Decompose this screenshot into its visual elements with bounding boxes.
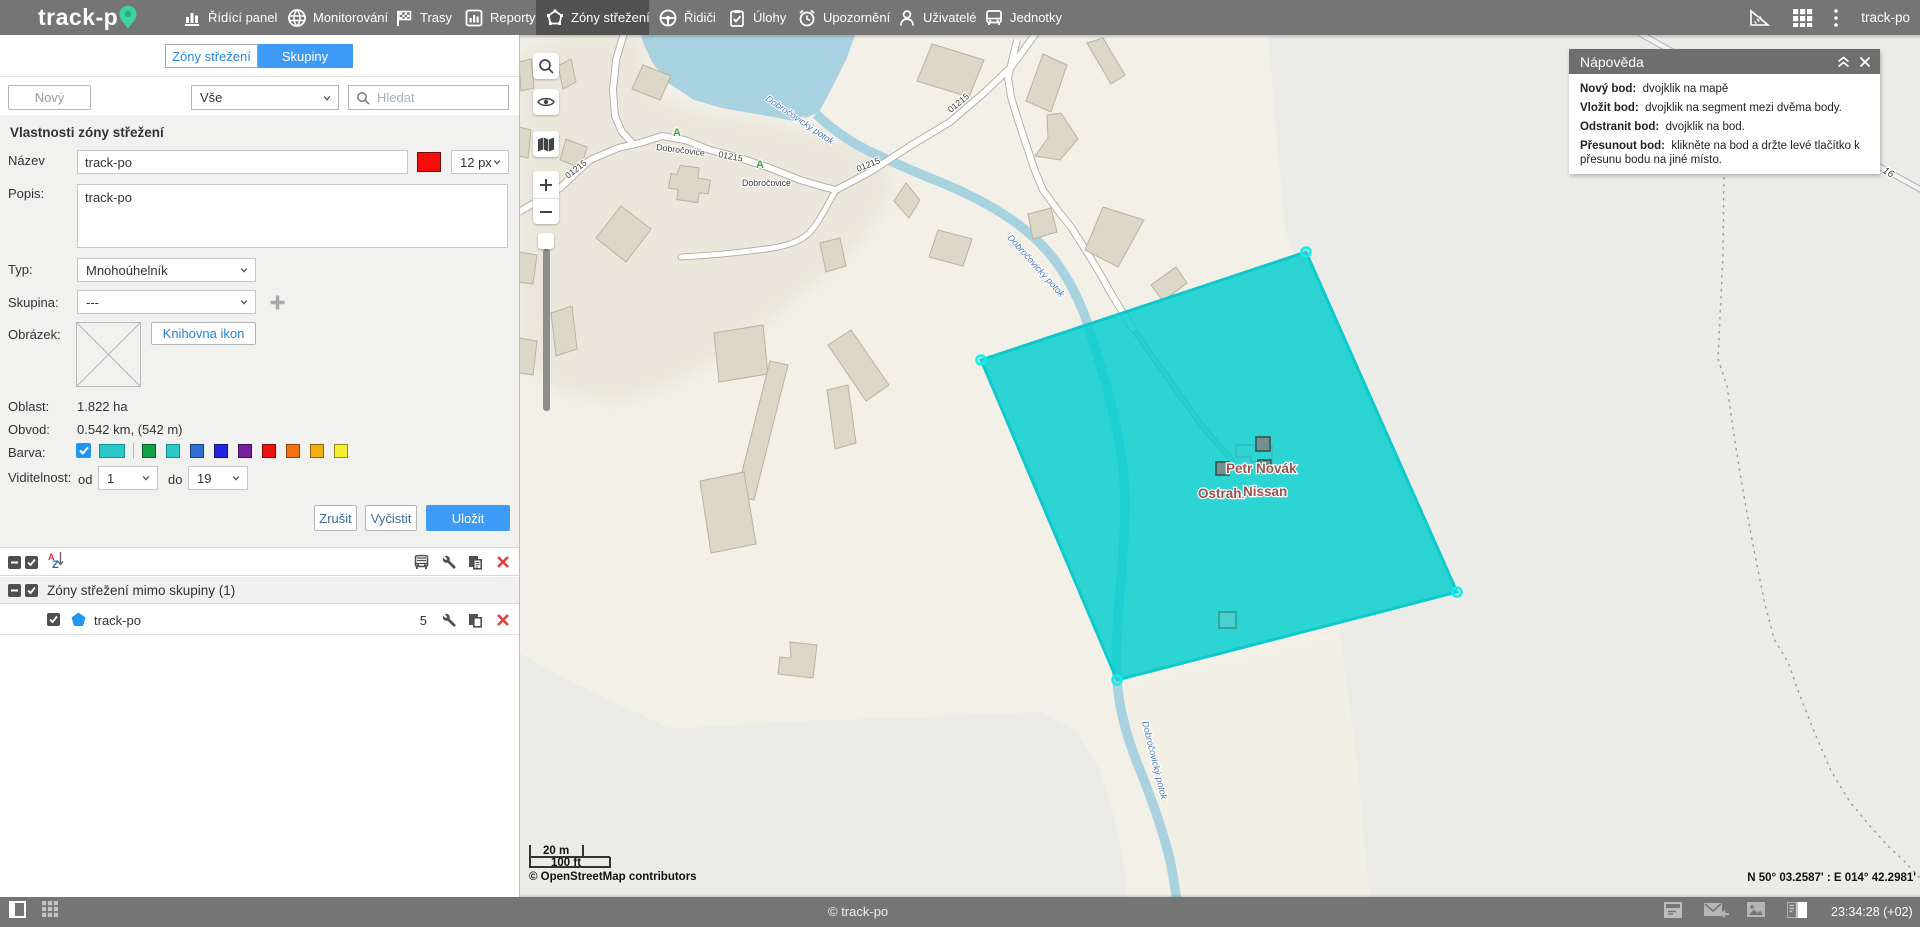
svg-text:100 ft: 100 ft bbox=[551, 857, 581, 869]
svg-text:Ostrah.: Ostrah. bbox=[1198, 486, 1245, 501]
svg-text:© OpenStreetMap contributors: © OpenStreetMap contributors bbox=[529, 871, 697, 883]
svg-text:Petr Novák: Petr Novák bbox=[1226, 461, 1297, 476]
svg-text:N 50° 03.2587' : E 014° 42.298: N 50° 03.2587' : E 014° 42.2981' bbox=[1747, 872, 1916, 884]
svg-text:Dobročovice: Dobročovice bbox=[742, 178, 791, 188]
svg-text:A: A bbox=[756, 159, 764, 171]
svg-text:20 m: 20 m bbox=[543, 845, 569, 857]
svg-text:A: A bbox=[673, 127, 681, 139]
svg-text:Nissan: Nissan bbox=[1243, 484, 1287, 499]
